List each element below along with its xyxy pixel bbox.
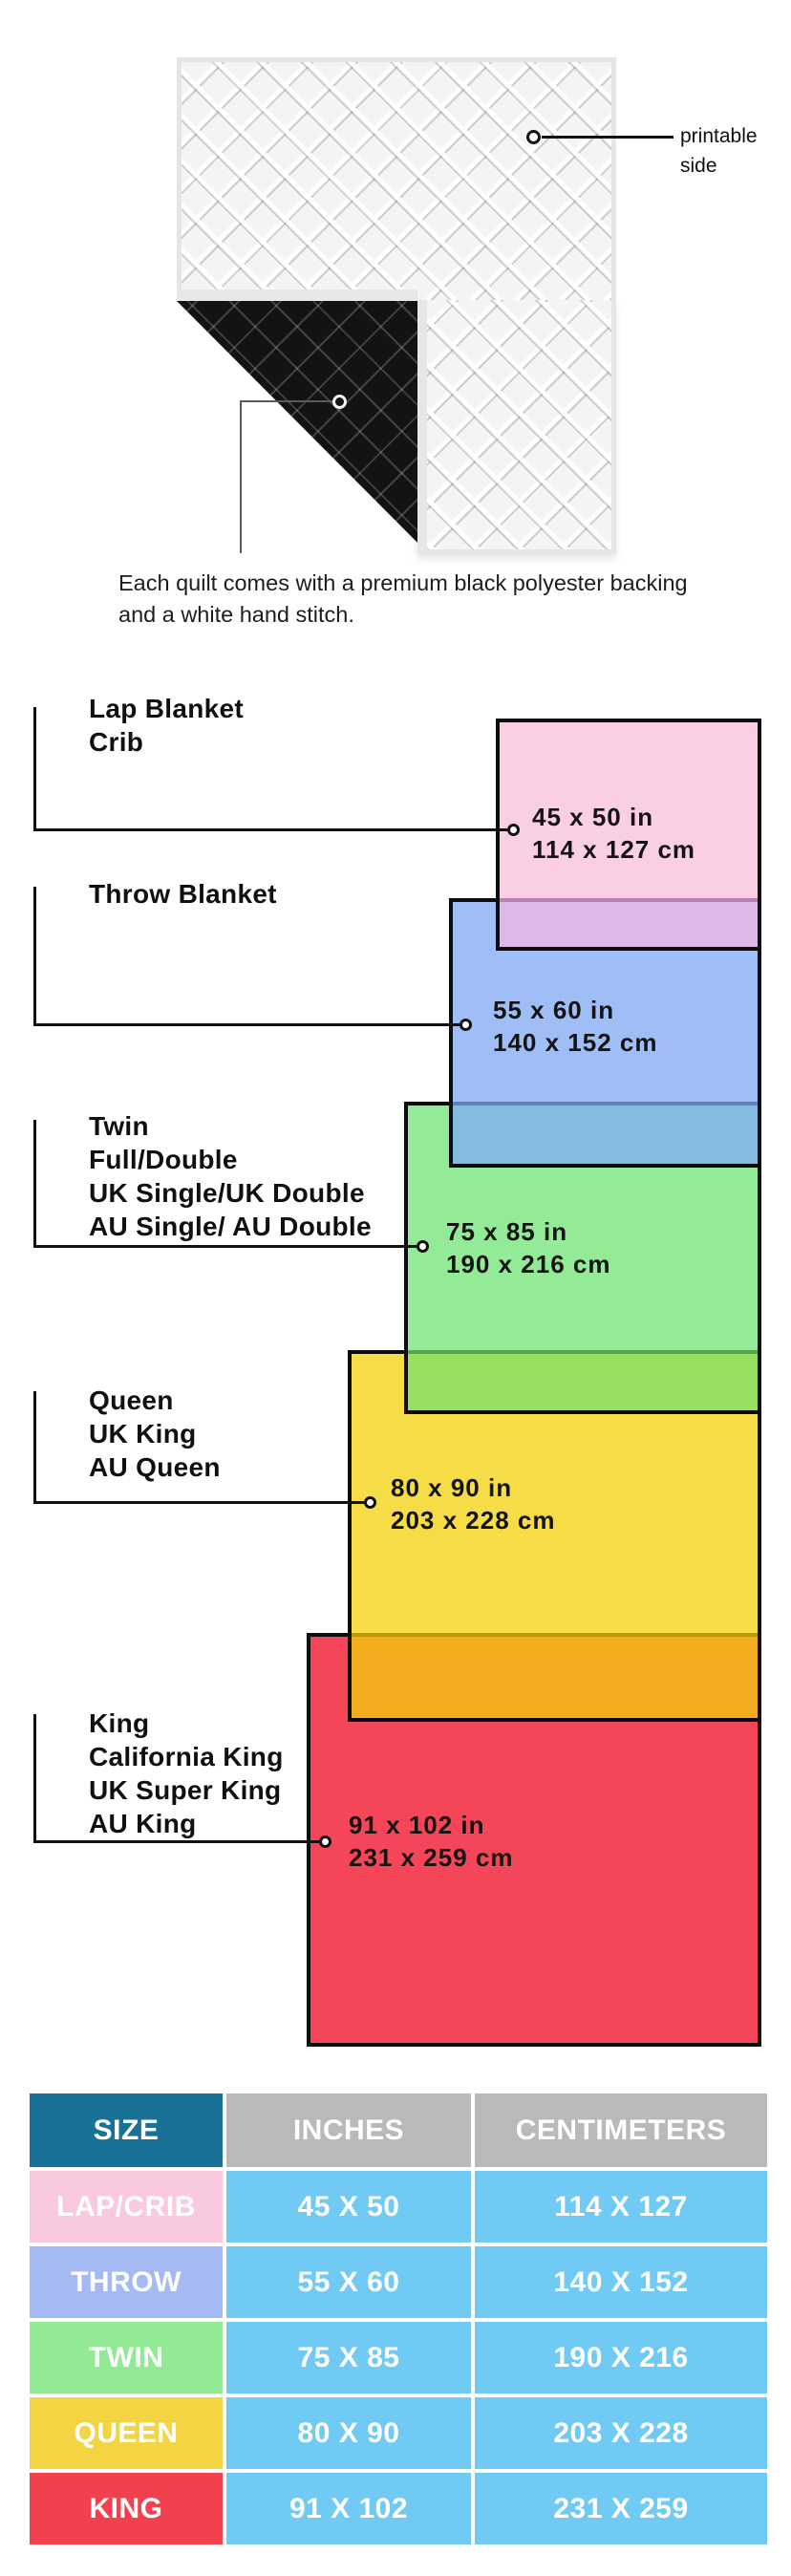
size-label-line: Lap Blanket bbox=[89, 692, 244, 725]
leader-twin-horizontal bbox=[33, 1245, 417, 1248]
dims-inches: 80 x 90 in bbox=[391, 1471, 555, 1504]
size-label-throw: Throw Blanket bbox=[89, 877, 277, 911]
size-label-line: Queen bbox=[89, 1384, 221, 1417]
size-label-lap: Lap Blanket Crib bbox=[89, 692, 244, 759]
marker-twin-icon bbox=[417, 1240, 429, 1253]
size-label-line: Full/Double bbox=[89, 1143, 372, 1176]
header-cell-centimeters: CENTIMETERS bbox=[475, 2093, 767, 2167]
size-label-line: UK King bbox=[89, 1417, 221, 1450]
marker-throw-icon bbox=[460, 1019, 472, 1031]
table-cell-king-inches: 91 X 102 bbox=[226, 2473, 471, 2544]
backing-marker-icon bbox=[332, 395, 347, 409]
table-cell-queen-size: QUEEN bbox=[30, 2397, 223, 2469]
marker-king-icon bbox=[319, 1835, 331, 1848]
leader-queen-horizontal bbox=[33, 1501, 364, 1504]
leader-lap-vertical bbox=[33, 707, 36, 831]
size-label-queen: Queen UK King AU Queen bbox=[89, 1384, 221, 1484]
marker-lap-icon bbox=[507, 824, 520, 836]
quilt-fold-binding bbox=[177, 290, 417, 301]
table-cell-throw-centimeters: 140 X 152 bbox=[475, 2246, 767, 2318]
header-cell-inches: INCHES bbox=[226, 2093, 471, 2167]
table-cell-throw-size: THROW bbox=[30, 2246, 223, 2318]
table-cell-queen-centimeters: 203 X 228 bbox=[475, 2397, 767, 2469]
table-cell-king-size: KING bbox=[30, 2473, 223, 2544]
size-table: SIZE INCHES CENTIMETERS LAP/CRIB 45 X 50… bbox=[30, 2093, 767, 2544]
size-dims-twin: 75 x 85 in 190 x 216 cm bbox=[446, 1215, 610, 1280]
backing-leader-line-vertical bbox=[240, 400, 242, 553]
leader-lap-horizontal bbox=[33, 828, 507, 831]
backing-leader-line-horizontal bbox=[240, 400, 332, 402]
table-cell-throw-inches: 55 X 60 bbox=[226, 2246, 471, 2318]
table-cell-lap-inches: 45 X 50 bbox=[226, 2171, 471, 2243]
dims-centimeters: 114 x 127 cm bbox=[532, 833, 695, 866]
overlap-twin-over-queen bbox=[408, 1350, 758, 1410]
size-label-line: AU Single/ AU Double bbox=[89, 1210, 372, 1243]
size-label-line: Crib bbox=[89, 725, 244, 759]
table-cell-twin-inches: 75 X 85 bbox=[226, 2322, 471, 2394]
size-label-line: California King bbox=[89, 1740, 284, 1773]
dims-inches: 91 x 102 in bbox=[349, 1809, 513, 1841]
hero-caption: Each quilt comes with a premium black po… bbox=[118, 568, 692, 631]
size-dims-lap: 45 x 50 in 114 x 127 cm bbox=[532, 801, 695, 866]
table-cell-twin-centimeters: 190 X 216 bbox=[475, 2322, 767, 2394]
leader-throw-vertical bbox=[33, 887, 36, 1026]
table-cell-lap-centimeters: 114 X 127 bbox=[475, 2171, 767, 2243]
leader-queen-vertical bbox=[33, 1391, 36, 1504]
table-cell-queen-inches: 80 X 90 bbox=[226, 2397, 471, 2469]
size-label-line: King bbox=[89, 1707, 284, 1740]
leader-king-horizontal bbox=[33, 1840, 319, 1843]
quilt-front-right bbox=[417, 300, 616, 554]
leader-throw-horizontal bbox=[33, 1023, 460, 1026]
table-cell-twin-size: TWIN bbox=[30, 2322, 223, 2394]
table-cell-king-centimeters: 231 X 259 bbox=[475, 2473, 767, 2544]
printable-side-leader-line bbox=[542, 136, 673, 139]
table-cell-lap-size: LAP/CRIB bbox=[30, 2171, 223, 2243]
printable-side-label: printable side bbox=[680, 121, 787, 181]
size-label-line: AU King bbox=[89, 1807, 284, 1840]
dims-inches: 55 x 60 in bbox=[493, 994, 657, 1026]
header-cell-size: SIZE bbox=[30, 2093, 223, 2167]
leader-twin-vertical bbox=[33, 1120, 36, 1248]
printable-side-marker-icon bbox=[526, 130, 541, 144]
leader-king-vertical bbox=[33, 1714, 36, 1843]
quilt-backing-fold bbox=[177, 301, 417, 543]
size-label-king: King California King UK Super King AU Ki… bbox=[89, 1707, 284, 1840]
dims-centimeters: 190 x 216 cm bbox=[446, 1248, 610, 1280]
dims-inches: 45 x 50 in bbox=[532, 801, 695, 833]
marker-queen-icon bbox=[364, 1496, 376, 1509]
size-label-line: Twin bbox=[89, 1109, 372, 1143]
size-dims-queen: 80 x 90 in 203 x 228 cm bbox=[391, 1471, 555, 1536]
dims-centimeters: 140 x 152 cm bbox=[493, 1026, 657, 1059]
size-label-line: Throw Blanket bbox=[89, 877, 277, 911]
size-dims-throw: 55 x 60 in 140 x 152 cm bbox=[493, 994, 657, 1059]
quilt-front-top bbox=[177, 57, 616, 300]
dims-centimeters: 203 x 228 cm bbox=[391, 1504, 555, 1536]
size-label-line: UK Super King bbox=[89, 1773, 284, 1807]
dims-centimeters: 231 x 259 cm bbox=[349, 1841, 513, 1874]
size-label-line: UK Single/UK Double bbox=[89, 1176, 372, 1210]
overlap-lap-over-throw bbox=[500, 898, 758, 947]
size-dims-king: 91 x 102 in 231 x 259 cm bbox=[349, 1809, 513, 1874]
dims-inches: 75 x 85 in bbox=[446, 1215, 610, 1248]
overlap-throw-over-twin bbox=[453, 1102, 758, 1164]
size-label-twin: Twin Full/Double UK Single/UK Double AU … bbox=[89, 1109, 372, 1243]
overlap-queen-over-king bbox=[352, 1633, 758, 1718]
size-label-line: AU Queen bbox=[89, 1450, 221, 1484]
